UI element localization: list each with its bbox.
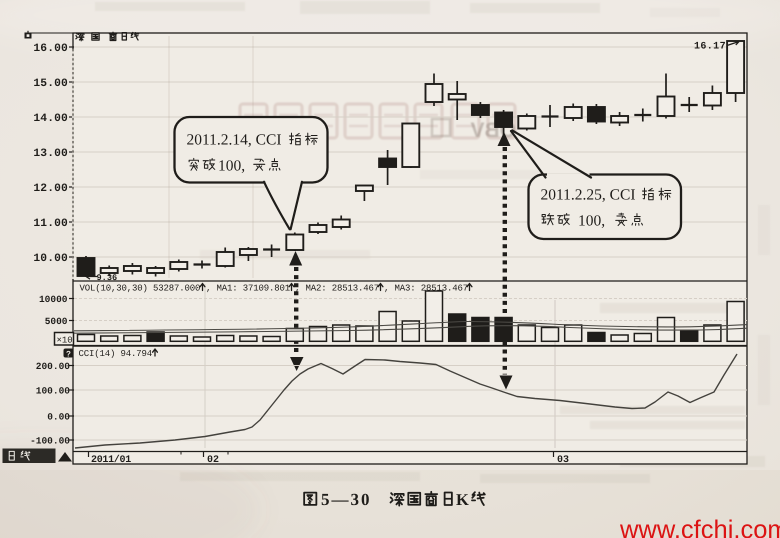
svg-text:VOL(10,30,30) 53287.000: VOL(10,30,30) 53287.000 <box>80 284 201 294</box>
svg-text:11.00: 11.00 <box>33 218 68 230</box>
svg-text:9.36: 9.36 <box>97 273 118 283</box>
svg-text:15.00: 15.00 <box>33 78 68 90</box>
svg-text:14.00: 14.00 <box>33 113 68 125</box>
svg-text:0.00: 0.00 <box>47 412 70 423</box>
svg-text:K: K <box>456 490 469 509</box>
svg-text:www.cfchi.com: www.cfchi.com <box>619 516 780 538</box>
svg-text:100.00: 100.00 <box>36 386 71 397</box>
svg-text:16.00: 16.00 <box>33 43 68 55</box>
svg-text:100,: 100, <box>218 158 245 175</box>
svg-text:13.00: 13.00 <box>33 148 68 160</box>
svg-text:200.00: 200.00 <box>36 361 71 372</box>
svg-text:02: 02 <box>207 455 219 466</box>
svg-text:×10: ×10 <box>57 335 73 345</box>
svg-text:03: 03 <box>557 455 569 466</box>
svg-text:2011.2.14, CCI: 2011.2.14, CCI <box>187 132 282 149</box>
svg-text:CCI(14) 94.794: CCI(14) 94.794 <box>79 349 153 359</box>
svg-text:100,: 100, <box>578 213 605 230</box>
svg-text:5—30: 5—30 <box>321 490 372 509</box>
svg-text:5000: 5000 <box>45 316 68 327</box>
svg-text:10000: 10000 <box>39 294 68 305</box>
svg-text:, MA1: 37109.801: , MA1: 37109.801 <box>206 284 290 294</box>
svg-text:12.00: 12.00 <box>33 183 68 195</box>
svg-text:, MA2: 28513.467: , MA2: 28513.467 <box>295 284 379 294</box>
svg-text:2011/01: 2011/01 <box>91 454 131 466</box>
svg-text:10.00: 10.00 <box>33 253 68 265</box>
svg-text:2011.2.25, CCI: 2011.2.25, CCI <box>541 187 636 204</box>
svg-text:?: ? <box>66 350 71 359</box>
svg-text:16.17: 16.17 <box>694 42 726 53</box>
svg-text:-100.00: -100.00 <box>30 436 70 447</box>
